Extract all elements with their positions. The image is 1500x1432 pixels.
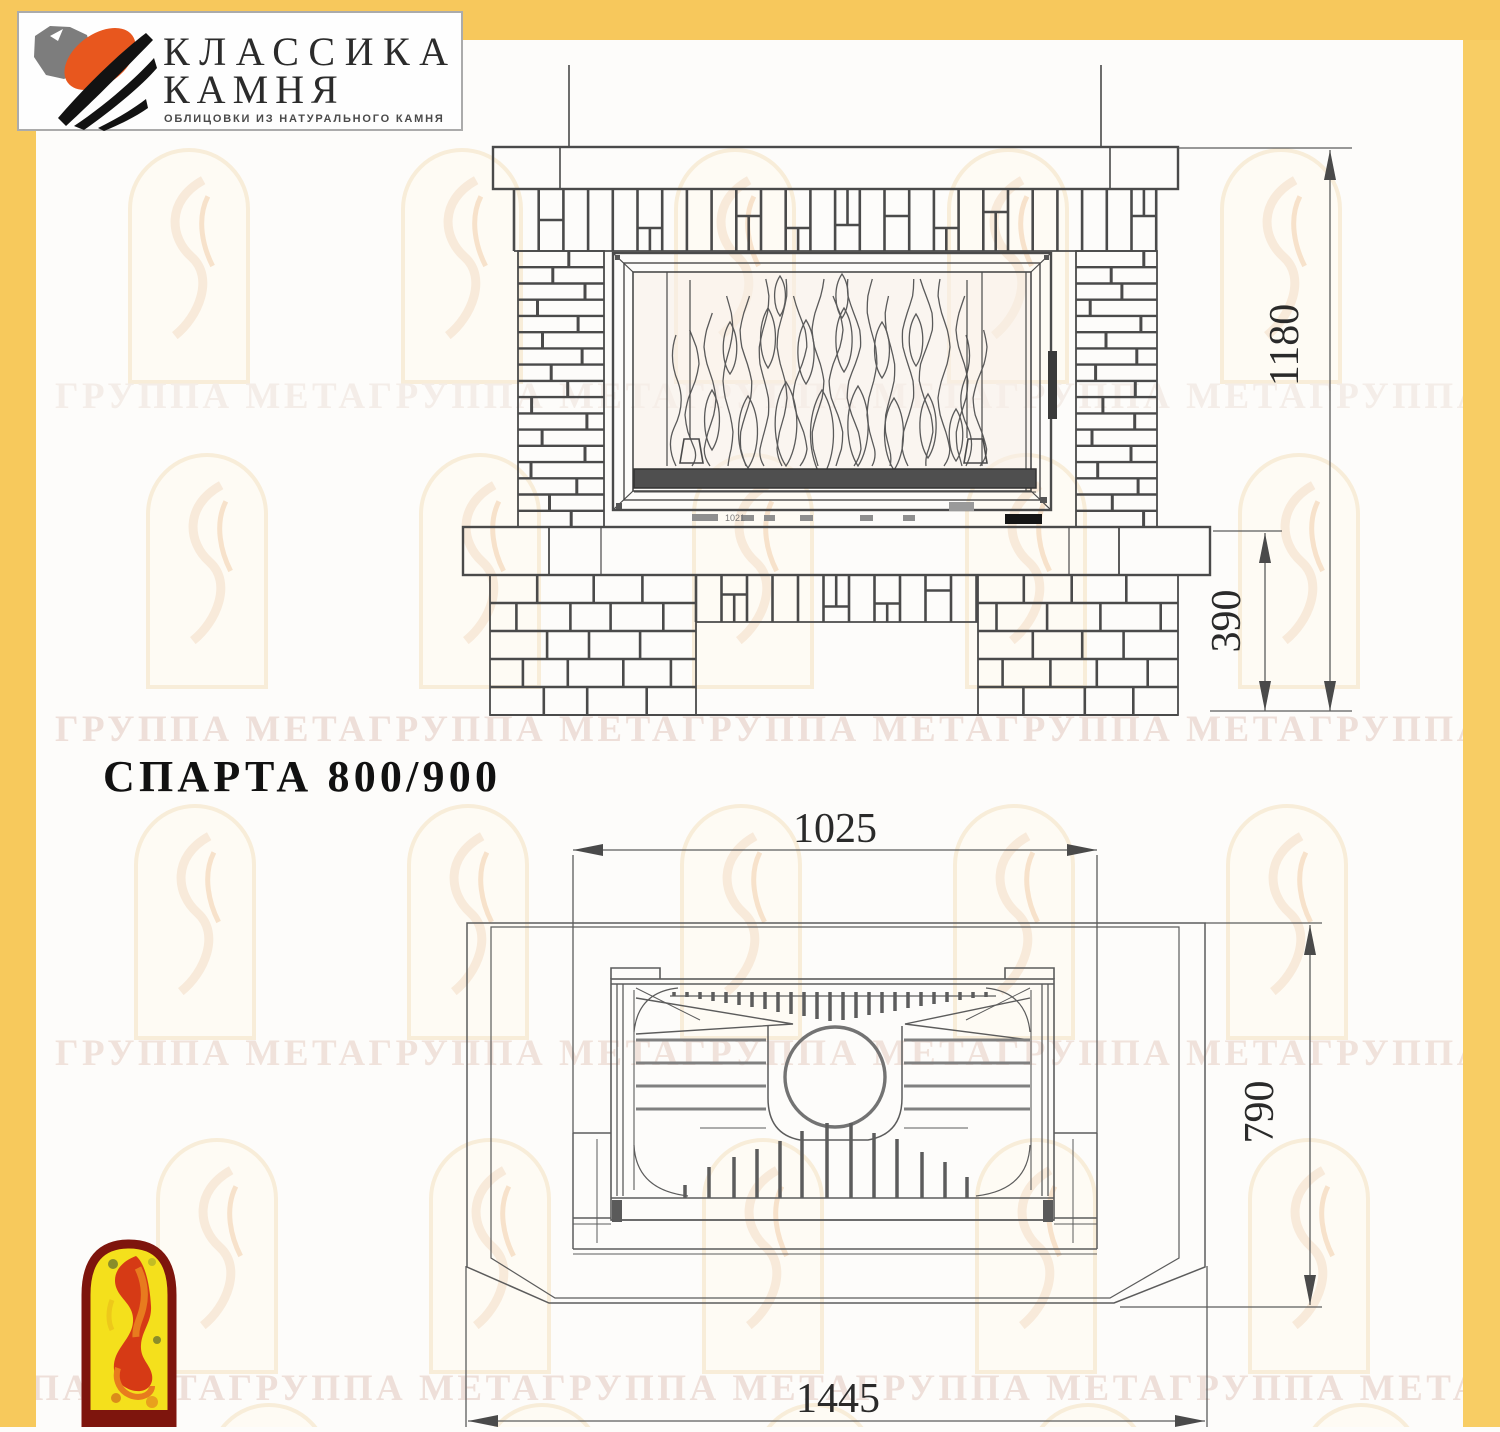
svg-text:1445: 1445	[796, 1376, 880, 1422]
svg-text:390: 390	[1204, 590, 1250, 653]
svg-text:ГРУППА МЕТАГРУППА МЕТАГРУППА М: ГРУППА МЕТАГРУППА МЕТАГРУППА МЕТАГРУППА …	[55, 1033, 1500, 1074]
svg-text:КАМНЯ: КАМНЯ	[163, 67, 345, 112]
svg-text:1021: 1021	[725, 513, 745, 523]
svg-text:1180: 1180	[1262, 304, 1308, 386]
svg-text:790: 790	[1237, 1081, 1283, 1144]
svg-text:ОБЛИЦОВКИ ИЗ НАТУРАЛЬНОГО КАМН: ОБЛИЦОВКИ ИЗ НАТУРАЛЬНОГО КАМНЯ	[164, 113, 445, 125]
svg-text:1025: 1025	[793, 806, 877, 852]
svg-text:ГРУППА МЕТАГРУППА МЕТАГРУППА М: ГРУППА МЕТАГРУППА МЕТАГРУППА МЕТАГРУППА …	[0, 1368, 1483, 1409]
svg-text:СПАРТА 800/900: СПАРТА 800/900	[103, 752, 501, 801]
